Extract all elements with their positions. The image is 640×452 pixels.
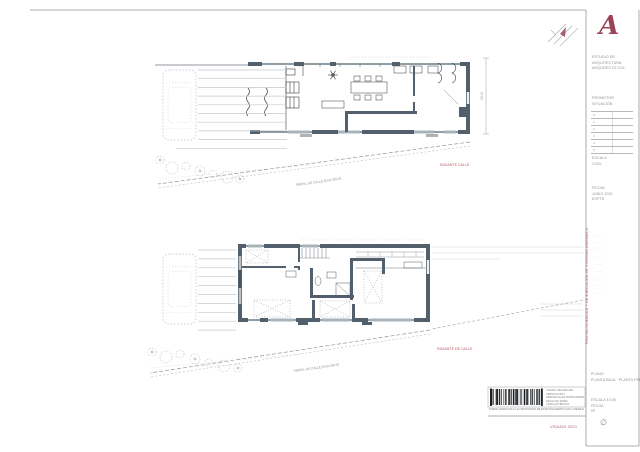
text-line: ARQUITECTO COL. [592, 66, 626, 72]
stamp-footer-line: PUEDE VERIFICAR LA AUTENTICIDAD DE ESTE … [489, 408, 584, 411]
lower-floor-plan: PERFIL DE CALLE EXISTENTE RASANTE DE CAL… [148, 240, 583, 377]
upper-interior-walls [345, 66, 469, 132]
deck-lines-lower [198, 250, 236, 330]
upper-slope-label: PERFIL DE CALLE EXISTENTE [296, 177, 342, 187]
text-line: ·· ····· [594, 290, 634, 297]
title-block: A ESTUDIO DEARQUITECTURAARQUITECTO COL. … [586, 10, 639, 446]
text-line: 3 · [591, 132, 633, 139]
scale-info: ESCALA1/100 [592, 156, 607, 167]
bushes-upper [156, 156, 244, 183]
text-line: ·· ····· [594, 239, 634, 246]
lower-exterior-walls [238, 240, 430, 325]
text-line: PROMOTOR [592, 96, 614, 102]
text-line: ·· ····· [594, 282, 634, 289]
dining-table [351, 76, 387, 100]
visado-stamp-text: VISADO 2021 [550, 424, 577, 429]
text-line: 4 · [591, 139, 633, 146]
text-line: ESCALA [592, 156, 607, 162]
car-outline-upper [163, 70, 196, 140]
spiral-stair-symbol [328, 71, 338, 80]
kitchen-counter [322, 66, 438, 108]
bushes-lower [148, 348, 242, 372]
lower-terrace-lines [432, 247, 583, 316]
sheet-info: ESCALA 1/100FECHANº [591, 398, 616, 415]
lower-interior-walls [242, 248, 385, 320]
car-outline-lower [163, 254, 196, 324]
diameter-symbol: ∅ [600, 418, 607, 427]
lower-slope-right [432, 300, 583, 329]
text-line: 1 · [591, 118, 633, 125]
text-line: SITUACIÓN [592, 102, 614, 108]
lower-slope-lines [150, 330, 430, 377]
stair-break-lines [247, 88, 268, 116]
text-line: ·· ····· [594, 268, 634, 275]
text-line: COPIA AUTÉNTICA [546, 403, 584, 407]
text-line: ·· ····· [594, 254, 634, 261]
upper-dimension-text: 28.40 [480, 92, 484, 100]
upper-red-note: RASANTE CALLE [440, 163, 470, 167]
lower-red-note: RASANTE DE CALLE [437, 347, 473, 351]
text-line: ·· ····· [594, 232, 634, 239]
text-line: 2 · [591, 125, 633, 132]
upper-floor-plan: 28.40 PERFIL DE CALLE EXISTENTE RASANTE … [155, 57, 489, 188]
revision-table: 0 ·1 ·2 ·3 ·4 ·5 · [591, 111, 633, 154]
text-line: FIRMADO ELECTRÓNICAMENTE [546, 396, 584, 400]
architect-info: ESTUDIO DEARQUITECTURAARQUITECTO COL. [592, 55, 626, 72]
text-line: EXPTE. [592, 197, 613, 203]
text-line: ESCALA 1/100 [591, 398, 616, 404]
plan-name: PLANOPLANTA BAJA · PLANTA PRIMERA [591, 372, 640, 383]
text-line: ·· ····· [594, 246, 634, 253]
text-line: ·· ····· [594, 261, 634, 268]
plan-drawing: 28.40 PERFIL DE CALLE EXISTENTE RASANTE … [0, 0, 640, 452]
north-arrow-icon [548, 24, 578, 46]
text-line: 1/100 [592, 162, 607, 168]
text-line: Nº [591, 409, 616, 415]
chair-symbol [438, 63, 442, 83]
firm-logo: A [599, 11, 619, 41]
deck-lines-upper [176, 70, 287, 148]
lower-slope-label: PERFIL DE CALLE EXISTENTE [294, 363, 340, 373]
text-line: PLANTA BAJA · PLANTA PRIMERA [591, 378, 640, 384]
stamp-text-lines: CÓDIGO SEGURO DEVERIFICACIÓNFIRMADO ELEC… [546, 389, 584, 407]
chair-symbol [452, 63, 456, 83]
upper-furniture [286, 63, 458, 108]
drawing-sheet: 28.40 PERFIL DE CALLE EXISTENTE RASANTE … [0, 0, 640, 452]
project-title-vertical: PROYECTO BÁSICO Y DE EJECUCIÓN DE VIVIEN… [585, 228, 592, 344]
text-line: 0 · [591, 111, 633, 118]
text-line: ·· ····· [594, 275, 634, 282]
text-line: 5 · [591, 146, 633, 154]
coordinates-table: ·· ······· ······· ······· ······· ·····… [594, 232, 634, 297]
promoter-info: PROMOTORSITUACIÓN [592, 96, 614, 107]
lower-stair [300, 248, 330, 258]
date-info: FECHAJUNIO 2021EXPTE. [592, 186, 613, 203]
